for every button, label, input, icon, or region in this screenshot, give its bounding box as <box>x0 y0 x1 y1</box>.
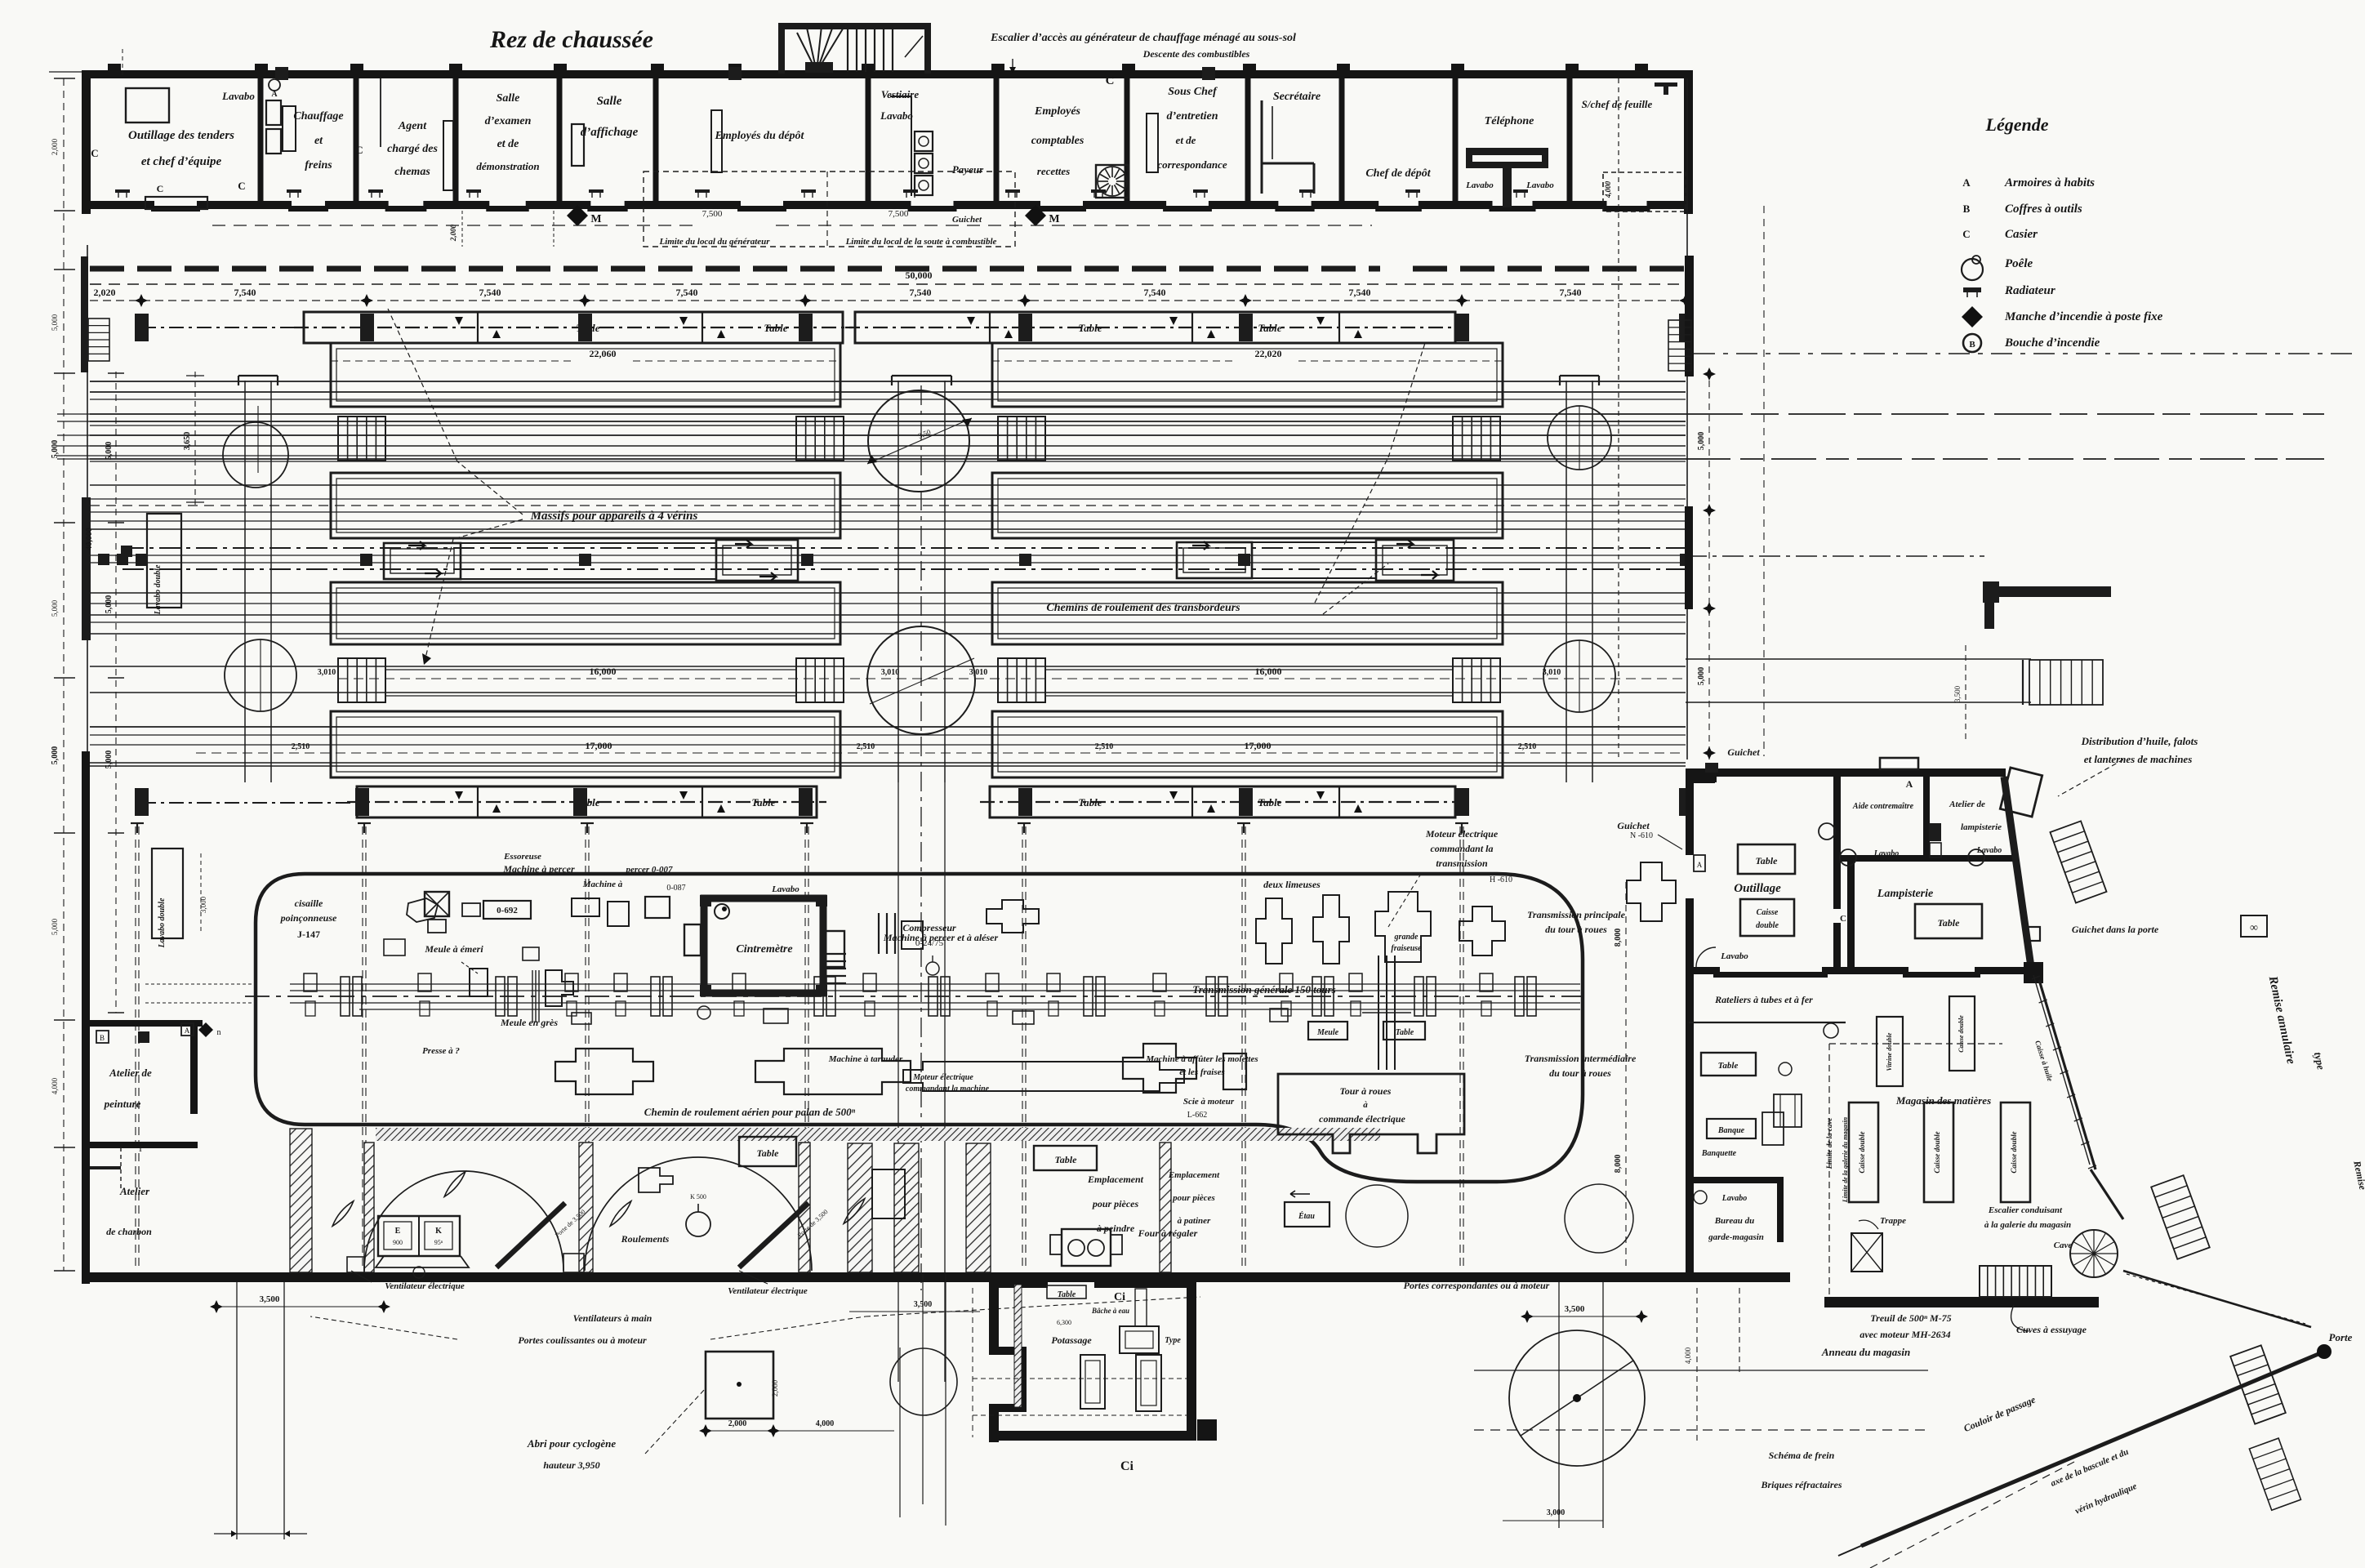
svg-text:Radiateur: Radiateur <box>2004 284 2055 297</box>
svg-text:démonstration: démonstration <box>476 160 539 172</box>
svg-text:Table: Table <box>1258 796 1281 808</box>
svg-text:double: double <box>1756 921 1779 930</box>
svg-text:Lavabo double: Lavabo double <box>158 898 167 948</box>
svg-text:B: B <box>100 1034 105 1042</box>
svg-text:Table: Table <box>1258 322 1281 334</box>
svg-text:7,540: 7,540 <box>910 287 932 298</box>
svg-text:2,000: 2,000 <box>51 138 59 155</box>
svg-text:hauteur 3,950: hauteur 3,950 <box>543 1459 599 1471</box>
svg-text:Caisse double: Caisse double <box>1957 1015 1965 1053</box>
svg-text:5,000: 5,000 <box>105 442 114 461</box>
svg-text:comptables: comptables <box>1031 135 1085 147</box>
svg-text:Caisse double: Caisse double <box>1933 1131 1941 1173</box>
svg-text:5,000: 5,000 <box>51 746 60 765</box>
svg-text:2,510: 2,510 <box>292 742 310 751</box>
svg-text:Ci: Ci <box>1114 1291 1125 1303</box>
svg-text:Lavabo: Lavabo <box>1721 1194 1748 1203</box>
svg-text:Lavabo: Lavabo <box>1525 180 1554 190</box>
svg-text:Potassage: Potassage <box>1051 1334 1092 1346</box>
svg-text:95ⁿ: 95ⁿ <box>434 1239 443 1246</box>
svg-text:Caisse double: Caisse double <box>2010 1131 2018 1173</box>
svg-text:Emplacement: Emplacement <box>1168 1170 1220 1180</box>
svg-text:3,650: 3,650 <box>183 432 192 451</box>
svg-text:Guichet: Guichet <box>1617 820 1650 831</box>
svg-text:et lanternes de machines: et lanternes de machines <box>2084 753 2193 765</box>
svg-text:Ci: Ci <box>1120 1459 1134 1473</box>
svg-text:Lampisterie: Lampisterie <box>1877 888 1933 900</box>
svg-text:2,000: 2,000 <box>771 1379 779 1396</box>
svg-text:Employés: Employés <box>1034 105 1081 118</box>
svg-text:16,000: 16,000 <box>590 666 617 677</box>
svg-text:Cuves à essuyage: Cuves à essuyage <box>2016 1324 2087 1335</box>
svg-text:Caisse double: Caisse double <box>1858 1131 1866 1173</box>
svg-text:Scie à moteur: Scie à moteur <box>1183 1097 1235 1107</box>
svg-text:recettes: recettes <box>1037 165 1070 177</box>
svg-text:17,000: 17,000 <box>1245 740 1272 751</box>
svg-text:freins: freins <box>305 159 332 171</box>
svg-text:Tour à roues: Tour à roues <box>1340 1085 1392 1097</box>
svg-text:Employés du dépôt: Employés du dépôt <box>715 130 805 142</box>
svg-text:7,500: 7,500 <box>889 209 909 219</box>
svg-text:Limite de la cave: Limite de la cave <box>1825 1118 1833 1170</box>
svg-text:3,010: 3,010 <box>969 668 988 677</box>
svg-text:17,000: 17,000 <box>586 740 612 751</box>
svg-text:4,000: 4,000 <box>1604 180 1612 198</box>
svg-text:garde-magasin: garde-magasin <box>1708 1232 1764 1242</box>
svg-text:3,500: 3,500 <box>260 1294 280 1304</box>
svg-text:Atelier de: Atelier de <box>1949 800 1985 809</box>
svg-text:pour pièces: pour pièces <box>1172 1193 1215 1203</box>
svg-text:transmission: transmission <box>1436 857 1488 869</box>
svg-text:Atelier: Atelier <box>119 1185 150 1197</box>
svg-text:Table: Table <box>757 1147 780 1159</box>
svg-text:T: T <box>138 1144 144 1154</box>
svg-text:Outillage: Outillage <box>1734 882 1781 895</box>
svg-text:2,510: 2,510 <box>857 742 875 751</box>
svg-text:Ventilateurs à main: Ventilateurs à main <box>573 1312 652 1324</box>
svg-text:Magasin des matières: Magasin des matières <box>1895 1094 1991 1107</box>
svg-text:Payeur: Payeur <box>952 163 984 176</box>
svg-text:3,000: 3,000 <box>199 896 207 913</box>
svg-text:Lavabo: Lavabo <box>1465 180 1494 190</box>
svg-text:Outillage des tenders: Outillage des tenders <box>128 129 234 142</box>
svg-text:900: 900 <box>393 1239 403 1246</box>
svg-text:N -610: N -610 <box>1630 831 1653 840</box>
svg-text:Lavabo: Lavabo <box>1720 951 1748 961</box>
svg-text:C: C <box>1106 74 1115 87</box>
svg-text:Armoires à habits: Armoires à habits <box>2004 176 2095 189</box>
svg-text:Banque: Banque <box>1717 1126 1745 1135</box>
svg-text:7,540: 7,540 <box>234 287 256 298</box>
svg-text:Guichet: Guichet <box>1727 746 1760 758</box>
svg-text:Chemin de roulement aérien pou: Chemin de roulement aérien pour palan de… <box>644 1106 856 1118</box>
svg-text:Moteur électrique: Moteur électrique <box>912 1073 973 1082</box>
svg-text:B: B <box>1969 340 1975 350</box>
svg-text:deux limeuses: deux limeuses <box>1263 879 1321 890</box>
svg-text:5,000: 5,000 <box>1697 667 1706 686</box>
svg-text:et chef d’équipe: et chef d’équipe <box>141 155 222 168</box>
svg-text:Limite de la galerie du magasi: Limite de la galerie du magasin <box>1842 1116 1849 1203</box>
svg-text:n: n <box>217 1028 221 1037</box>
svg-text:Lavabo: Lavabo <box>771 884 799 894</box>
svg-text:Salle: Salle <box>597 95 622 108</box>
svg-text:Meule: Meule <box>1316 1028 1339 1037</box>
svg-text:Ventilateur électrique: Ventilateur électrique <box>385 1281 465 1291</box>
svg-text:du tour à roues: du tour à roues <box>1545 924 1607 935</box>
svg-text:Table: Table <box>1756 855 1779 866</box>
svg-text:chargé des: chargé des <box>387 143 438 155</box>
svg-text:avec moteur MH-2634: avec moteur MH-2634 <box>1859 1329 1950 1340</box>
svg-text:Bâche à eau: Bâche à eau <box>1091 1307 1129 1315</box>
svg-text:Emplacement: Emplacement <box>1087 1174 1144 1185</box>
svg-text:M: M <box>1049 213 1059 225</box>
svg-text:Caisse: Caisse <box>1757 908 1779 917</box>
svg-text:Meule à émeri: Meule à émeri <box>424 943 483 955</box>
svg-text:Cintremètre: Cintremètre <box>736 943 792 955</box>
svg-text:Sous Chef: Sous Chef <box>1168 86 1218 98</box>
svg-text:3,010: 3,010 <box>1543 668 1561 677</box>
svg-text:Bureau du: Bureau du <box>1714 1216 1755 1226</box>
svg-text:à la galerie du magasin: à la galerie du magasin <box>1984 1220 2071 1230</box>
svg-text:Banquette: Banquette <box>1701 1149 1737 1158</box>
svg-text:Roulements: Roulements <box>621 1233 670 1245</box>
svg-text:et de: et de <box>497 138 519 150</box>
svg-text:2,000: 2,000 <box>728 1419 747 1428</box>
svg-text:Presse à ?: Presse à ? <box>422 1046 460 1056</box>
svg-text:commandant la: commandant la <box>1430 843 1493 854</box>
svg-text:0-692: 0-692 <box>497 906 518 915</box>
svg-text:Table: Table <box>1078 796 1102 808</box>
svg-text:Vestiaire: Vestiaire <box>881 88 919 100</box>
svg-text:7,500: 7,500 <box>702 209 723 219</box>
svg-text:Essoreuse: Essoreuse <box>503 852 541 862</box>
svg-text:3,010: 3,010 <box>881 668 900 677</box>
svg-text:16,000: 16,000 <box>1255 666 1282 677</box>
svg-text:Atelier de: Atelier de <box>109 1067 152 1079</box>
svg-text:d’examen: d’examen <box>485 115 532 127</box>
svg-text:Portes coulissantes ou à m: Portes coulissantes ou à moteur <box>518 1334 647 1346</box>
svg-text:E: E <box>395 1227 401 1236</box>
svg-text:Table: Table <box>751 796 775 808</box>
svg-text:C: C <box>1840 914 1846 924</box>
svg-text:Abri pour cyclogène: Abri pour cyclogène <box>527 1437 617 1450</box>
svg-text:Moteur électrique: Moteur électrique <box>1425 828 1499 840</box>
svg-text:Table: Table <box>1396 1028 1414 1037</box>
svg-text:du tour à roues: du tour à roues <box>1549 1067 1611 1079</box>
svg-text:C: C <box>238 180 245 192</box>
svg-text:Distribution d’huile, falots: Distribution d’huile, falots <box>2081 735 2198 747</box>
svg-text:Coffres à outils: Coffres à outils <box>2005 203 2082 216</box>
svg-text:K 500: K 500 <box>690 1193 706 1200</box>
svg-text:Vitrine double: Vitrine double <box>1886 1032 1893 1071</box>
svg-text:à patiner: à patiner <box>1178 1216 1211 1226</box>
svg-text:Lavabo: Lavabo <box>880 109 913 122</box>
svg-text:7,540: 7,540 <box>479 287 501 298</box>
svg-text:chemas: chemas <box>394 166 430 178</box>
svg-text:J-147: J-147 <box>297 929 320 940</box>
svg-text:C: C <box>157 183 164 194</box>
svg-text:A: A <box>1906 778 1913 790</box>
svg-text:H -610: H -610 <box>1490 875 1512 884</box>
svg-text:4,000: 4,000 <box>816 1419 835 1428</box>
svg-text:2,510: 2,510 <box>1518 742 1537 751</box>
svg-text:d’affichage: d’affichage <box>581 126 639 139</box>
svg-text:Treuil de 500ⁿ M-75: Treuil de 500ⁿ M-75 <box>1870 1312 1951 1324</box>
svg-text:22,020: 22,020 <box>1255 348 1282 359</box>
svg-text:cisaille: cisaille <box>295 898 323 909</box>
svg-text:Salle: Salle <box>497 92 520 105</box>
svg-text:Lavabo double: Lavabo double <box>154 564 163 615</box>
svg-text:Transmission générale 150 tour: Transmission générale 150 tours <box>1192 983 1335 996</box>
svg-text:lampisterie: lampisterie <box>1961 822 2002 832</box>
svg-text:commande électrique: commande électrique <box>1319 1113 1405 1125</box>
svg-text:Rez de chaussée: Rez de chaussée <box>489 26 653 53</box>
svg-text:7,540: 7,540 <box>1144 287 1166 298</box>
svg-text:Escalier conduisant: Escalier conduisant <box>1988 1205 2063 1215</box>
svg-text:4,000: 4,000 <box>1684 1347 1692 1364</box>
svg-text:commandant la machine: commandant la machine <box>906 1085 990 1094</box>
svg-text:5,000: 5,000 <box>51 314 59 331</box>
svg-text:A: A <box>1962 176 1971 189</box>
svg-text:Machine à percer: Machine à percer <box>502 863 575 875</box>
svg-text:de charbon: de charbon <box>106 1226 152 1237</box>
svg-text:Ventilateur électrique: Ventilateur électrique <box>728 1286 808 1296</box>
svg-text:3,500: 3,500 <box>914 1300 933 1309</box>
svg-text:Machine à affûter les molettes: Machine à affûter les molettes <box>1145 1054 1258 1064</box>
svg-text:8,000: 8,000 <box>1614 1155 1623 1174</box>
svg-text:Secrétaire: Secrétaire <box>1273 91 1321 103</box>
svg-text:Escalier d’accès au générateur: Escalier d’accès au générateur de chauff… <box>990 32 1296 44</box>
svg-text:Manche d’incendie à poste fixe: Manche d’incendie à poste fixe <box>2004 310 2163 323</box>
svg-text:Cave: Cave <box>2054 1241 2073 1250</box>
svg-text:grande: grande <box>1394 933 1419 942</box>
svg-text:Briques réfractaires: Briques réfractaires <box>1761 1479 1842 1490</box>
svg-text:2,020: 2,020 <box>94 287 116 298</box>
svg-text:C: C <box>355 144 363 156</box>
svg-text:4,000: 4,000 <box>51 1077 59 1094</box>
svg-text:5,000: 5,000 <box>51 440 60 459</box>
svg-text:Table: Table <box>1938 917 1961 929</box>
svg-text:Transmission principale: Transmission principale <box>1527 909 1626 920</box>
svg-text:5,000: 5,000 <box>51 599 59 617</box>
svg-text:S/chef de feuille: S/chef de feuille <box>1582 98 1653 110</box>
svg-text:Porte: Porte <box>2329 1331 2353 1343</box>
svg-text:Limite du local du générateur: Limite du local du générateur <box>658 237 770 247</box>
svg-text:fraiseuse: fraiseuse <box>1391 944 1422 953</box>
svg-text:Machine à tarauder: Machine à tarauder <box>828 1054 903 1064</box>
svg-text:Table: Table <box>1055 1154 1078 1165</box>
svg-text:∞: ∞ <box>2250 922 2258 934</box>
svg-text:6,300: 6,300 <box>1057 1319 1071 1326</box>
svg-text:Chauffage: Chauffage <box>293 110 343 122</box>
svg-text:et de: et de <box>1176 134 1196 146</box>
svg-text:Chef de dépôt: Chef de dépôt <box>1365 167 1431 180</box>
svg-text:Table: Table <box>1078 322 1102 334</box>
svg-text:Type: Type <box>1165 1336 1181 1345</box>
svg-text:Machine à percer et à aléser: Machine à percer et à aléser <box>883 932 999 943</box>
svg-text:Table: Table <box>764 322 787 334</box>
svg-text:Guichet: Guichet <box>952 215 982 225</box>
svg-text:A: A <box>185 1027 190 1035</box>
svg-text:Limite du local de la soute à: Limite du local de la soute à combustibl… <box>845 237 997 247</box>
svg-text:Guichet dans la porte: Guichet dans la porte <box>2072 924 2159 935</box>
svg-text:Four à régaler: Four à régaler <box>1138 1227 1198 1239</box>
svg-text:Lavabo: Lavabo <box>1873 849 1900 858</box>
svg-text:d’entretien: d’entretien <box>1167 110 1218 122</box>
svg-text:pour pièces: pour pièces <box>1092 1198 1139 1209</box>
svg-text:7,540: 7,540 <box>1349 287 1371 298</box>
svg-text:50,000: 50,000 <box>906 269 933 281</box>
svg-text:22,060: 22,060 <box>590 348 617 359</box>
svg-text:Lavabo: Lavabo <box>221 90 255 102</box>
svg-text:7,540: 7,540 <box>1560 287 1582 298</box>
svg-text:3,500: 3,500 <box>1565 1304 1585 1314</box>
svg-text:C: C <box>91 147 98 159</box>
svg-text:Étau: Étau <box>1298 1211 1315 1221</box>
svg-text:5,000: 5,000 <box>51 918 59 935</box>
svg-text:Bouche d’incendie: Bouche d’incendie <box>2004 336 2100 350</box>
svg-text:K: K <box>435 1227 442 1236</box>
svg-text:Téléphone: Téléphone <box>1485 115 1534 127</box>
svg-text:Rateliers à tubes et à fer: Rateliers à tubes et à fer <box>1714 994 1813 1005</box>
svg-text:40,000: 40,000 <box>85 528 94 550</box>
svg-text:à: à <box>1363 1100 1368 1110</box>
svg-text:Portes correspondantes ou à mo: Portes correspondantes ou à moteur <box>1404 1280 1550 1291</box>
svg-text:Machine à: Machine à <box>582 880 623 889</box>
svg-text:Légende: Légende <box>1985 114 2049 135</box>
svg-text:Poêle: Poêle <box>2005 257 2033 270</box>
svg-text:A: A <box>1697 861 1703 869</box>
svg-text:Schéma de frein: Schéma de frein <box>1769 1450 1835 1461</box>
svg-text:Anneau du magasin: Anneau du magasin <box>1821 1346 1910 1358</box>
svg-text:Table: Table <box>1718 1061 1739 1071</box>
svg-text:B: B <box>1963 203 1971 215</box>
svg-text:2,000: 2,000 <box>449 224 457 242</box>
svg-text:correspondance: correspondance <box>1157 158 1227 171</box>
svg-text:8,000: 8,000 <box>1614 929 1623 947</box>
svg-text:Descente des combustibles: Descente des combustibles <box>1142 48 1250 60</box>
svg-text:C: C <box>1962 228 1970 240</box>
svg-text:Transmission intermédiaire: Transmission intermédiaire <box>1525 1053 1637 1064</box>
svg-text:et les fraises: et les fraises <box>1179 1067 1225 1077</box>
svg-text:peinture: peinture <box>104 1098 141 1110</box>
svg-text:Trappe: Trappe <box>1880 1216 1906 1226</box>
svg-text:poinçonneuse: poinçonneuse <box>280 912 337 924</box>
svg-text:Agent: Agent <box>398 120 427 132</box>
svg-text:Casier: Casier <box>2005 228 2038 241</box>
svg-text:5,000: 5,000 <box>1697 432 1706 451</box>
svg-text:Meule en grès: Meule en grès <box>500 1017 558 1028</box>
svg-text:5,000: 5,000 <box>105 595 114 614</box>
svg-text:2,510: 2,510 <box>1095 742 1114 751</box>
svg-text:L-662: L-662 <box>1187 1111 1207 1120</box>
svg-text:3,010: 3,010 <box>318 668 336 677</box>
svg-text:M: M <box>590 213 601 225</box>
svg-text:et: et <box>314 135 323 147</box>
svg-text:3,500: 3,500 <box>1953 685 1962 702</box>
svg-text:percer 0-007: percer 0-007 <box>625 865 673 875</box>
svg-text:5,000: 5,000 <box>105 751 114 769</box>
svg-text:Aide contremaître: Aide contremaître <box>1852 802 1914 811</box>
svg-text:0-087: 0-087 <box>666 884 685 893</box>
svg-text:3,000: 3,000 <box>1547 1508 1566 1517</box>
svg-text:7,540: 7,540 <box>676 287 698 298</box>
